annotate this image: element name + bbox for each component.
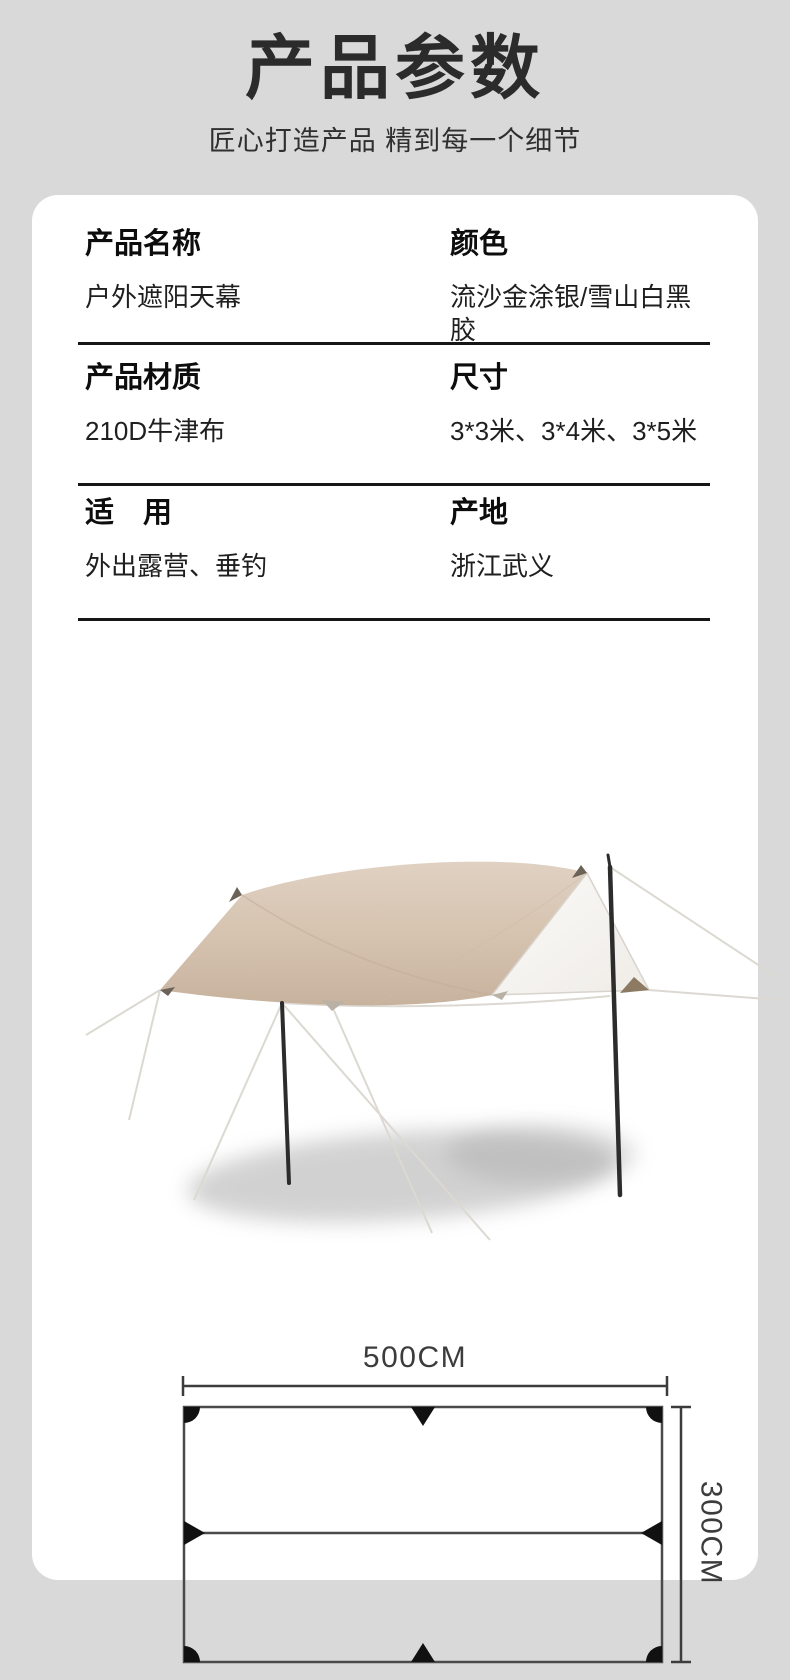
- spec-value-product-name: 户外遮阳天幕: [78, 281, 443, 314]
- corner-marker-top-left: [184, 1407, 200, 1423]
- spec-cell-material: 产品材质 210D牛津布: [78, 362, 443, 483]
- spec-label-color: 颜色: [443, 228, 710, 261]
- spec-row-3: 适 用 外出露营、垂钓 产地 浙江武义: [78, 486, 710, 621]
- attachment-point-markers: [184, 1407, 662, 1662]
- spec-cell-color: 颜色 流沙金涂银/雪山白黑胶: [443, 228, 710, 346]
- corner-marker-bottom-left: [184, 1646, 200, 1662]
- marker-bottom-center: [411, 1643, 435, 1662]
- spec-cell-size: 尺寸 3*3米、3*4米、3*5米: [443, 362, 710, 483]
- width-dimension: 500CM: [183, 1341, 667, 1396]
- page-title: 产品参数: [0, 0, 790, 107]
- corner-marker-bottom-right: [646, 1646, 662, 1662]
- spec-value-color: 流沙金涂银/雪山白黑胶: [443, 281, 710, 346]
- spec-row-2: 产品材质 210D牛津布 尺寸 3*3米、3*4米、3*5米: [78, 345, 710, 486]
- spec-value-size: 3*3米、3*4米、3*5米: [443, 415, 710, 448]
- marker-top-center: [411, 1407, 435, 1426]
- ground-shadow: [184, 1117, 637, 1235]
- height-dimension: 300CM: [671, 1407, 728, 1662]
- spec-cell-usage: 适 用 外出露营、垂钓: [78, 497, 443, 618]
- product-spec-card: 产品名称 户外遮阳天幕 颜色 流沙金涂银/雪山白黑胶 产品材质 210D牛津布 …: [32, 195, 758, 1580]
- width-dimension-label: 500CM: [363, 1341, 467, 1374]
- spec-row-1: 产品名称 户外遮阳天幕 颜色 流沙金涂银/雪山白黑胶: [78, 195, 710, 345]
- page-subtitle: 匠心打造产品 精到每一个细节: [0, 119, 790, 158]
- marker-middle-left: [184, 1521, 205, 1545]
- product-photo-canopy: [72, 828, 782, 1243]
- spec-label-material: 产品材质: [78, 362, 443, 395]
- corner-marker-top-right: [646, 1407, 662, 1423]
- spec-table: 产品名称 户外遮阳天幕 颜色 流沙金涂银/雪山白黑胶 产品材质 210D牛津布 …: [78, 195, 710, 621]
- tarp-outline-rect: [184, 1407, 662, 1662]
- page-header: 产品参数 匠心打造产品 精到每一个细节: [0, 0, 790, 158]
- spec-value-origin: 浙江武义: [443, 550, 710, 583]
- spec-label-usage: 适 用: [78, 497, 443, 530]
- spec-label-size: 尺寸: [443, 362, 710, 395]
- spec-value-material: 210D牛津布: [78, 415, 443, 448]
- marker-middle-right: [641, 1521, 662, 1545]
- size-diagram: 500CM 300CM: [152, 1280, 752, 1680]
- height-dimension-label: 300CM: [695, 1481, 728, 1585]
- spec-label-origin: 产地: [443, 497, 710, 530]
- spec-cell-product-name: 产品名称 户外遮阳天幕: [78, 228, 443, 346]
- spec-cell-origin: 产地 浙江武义: [443, 497, 710, 618]
- spec-value-usage: 外出露营、垂钓: [78, 550, 443, 583]
- spec-label-product-name: 产品名称: [78, 228, 443, 261]
